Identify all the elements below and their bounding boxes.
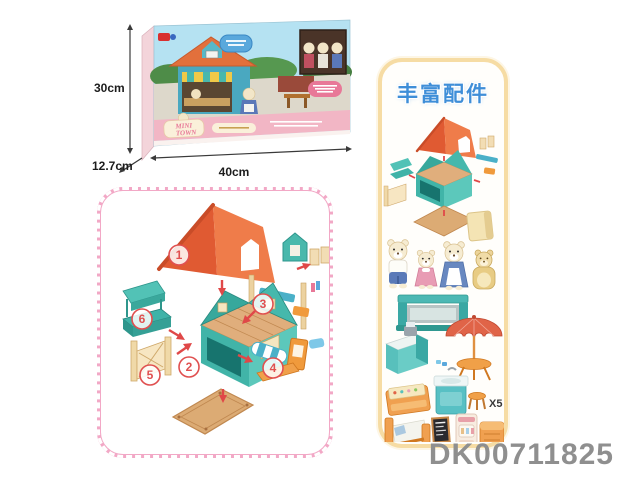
box-width-label: 40cm	[219, 165, 250, 179]
accessories-art: X5	[382, 112, 504, 442]
storage-box	[467, 211, 494, 241]
part-number-5: 5	[147, 368, 154, 382]
stool-quantity-label: X5	[489, 398, 502, 410]
box-brand-logo-icon	[158, 33, 176, 41]
sink-unit	[434, 368, 468, 414]
box-blue-badge	[220, 35, 252, 52]
box-pink-badge	[308, 81, 342, 97]
part-number-1: 1	[176, 248, 183, 262]
papa-bear	[388, 240, 409, 289]
parasol-table	[446, 315, 502, 380]
mama-bear	[440, 242, 468, 291]
assembly-diagram-panel: 1 2 3 4 5 6	[97, 187, 333, 458]
accessories-panel: 丰富配件	[378, 58, 508, 448]
floor-base-part	[173, 389, 253, 434]
box-depth-label: 12.7cm	[92, 159, 133, 173]
assembly-diagram: 1 2 3 4 5 6	[101, 191, 329, 454]
show-counter	[385, 383, 430, 416]
accessories-title: 丰富配件	[382, 78, 504, 108]
awning-counter-part	[123, 281, 171, 337]
stool	[469, 392, 486, 410]
box-illustration: MINI TOWN 30cm 12.7cm 40cm	[92, 10, 362, 182]
box-side-face	[142, 26, 154, 160]
roof-part	[159, 205, 275, 283]
box-bottom-band: MINI TOWN	[154, 110, 350, 146]
box-bears-window	[300, 30, 346, 74]
box-front-face: MINI TOWN	[150, 20, 352, 146]
part-number-4: 4	[270, 361, 277, 375]
bed	[385, 418, 430, 442]
part-number-2: 2	[186, 360, 193, 374]
part-number-6: 6	[139, 312, 146, 326]
brand-line2: TOWN	[176, 128, 198, 137]
box-height-label: 30cm	[94, 81, 125, 95]
product-box-photo: MINI TOWN 30cm 12.7cm 40cm	[92, 10, 362, 182]
part-number-3: 3	[260, 297, 267, 311]
product-code: DK00711825	[429, 438, 614, 472]
kid-bear	[415, 250, 437, 289]
honey-bear	[473, 250, 495, 289]
